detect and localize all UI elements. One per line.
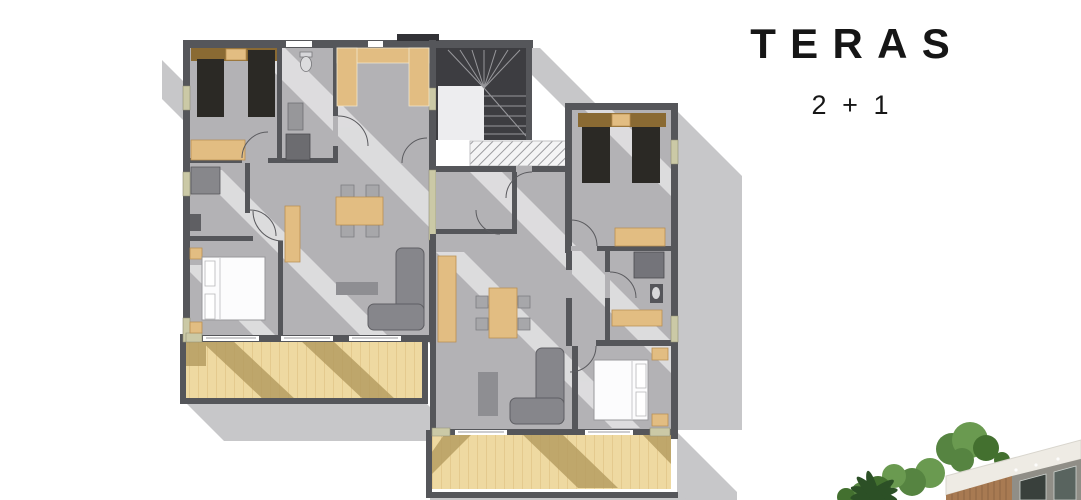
chair [341, 225, 354, 237]
chair [518, 318, 530, 330]
terrace-b [426, 428, 678, 498]
kitchen-counter [409, 48, 429, 106]
dining-table [336, 197, 383, 225]
tv-unit [285, 206, 300, 262]
dresser [191, 140, 245, 160]
single-bed [582, 127, 610, 183]
dining-table [489, 288, 517, 338]
chair [476, 296, 488, 308]
vanity-sink [612, 310, 662, 326]
floor-plan [0, 0, 1081, 500]
coffee-table [478, 372, 498, 416]
shower [191, 167, 220, 194]
nightstand [652, 348, 668, 360]
coffee-table [336, 282, 378, 295]
chair [518, 296, 530, 308]
entrance-walkway [470, 141, 570, 166]
nightstand [190, 322, 202, 333]
villa-render [837, 422, 1081, 500]
kitchen-counter [337, 48, 357, 106]
chair [366, 225, 379, 237]
page: TERAS 2 + 1 [0, 0, 1081, 500]
sink [190, 214, 201, 231]
pillow [205, 294, 215, 319]
staircase [436, 48, 532, 140]
shower [634, 252, 664, 278]
nightstand [190, 248, 202, 259]
terrace-a [180, 334, 428, 404]
single-bed [197, 59, 224, 117]
dresser [615, 228, 665, 246]
pillow [636, 392, 646, 416]
single-bed [632, 127, 660, 183]
toilet-bowl [652, 287, 660, 299]
shower [286, 134, 310, 160]
pillow [636, 364, 646, 388]
sideboard [438, 256, 456, 342]
toilet-bowl [301, 57, 312, 72]
nightstand [226, 49, 246, 60]
nightstand [612, 114, 630, 126]
chair [341, 185, 354, 197]
single-bed [248, 50, 275, 117]
chair [366, 185, 379, 197]
chair [476, 318, 488, 330]
nightstand [652, 414, 668, 426]
sofa [368, 304, 424, 330]
sofa [510, 398, 564, 424]
vanity-sink [288, 103, 303, 130]
pillow [205, 261, 215, 286]
